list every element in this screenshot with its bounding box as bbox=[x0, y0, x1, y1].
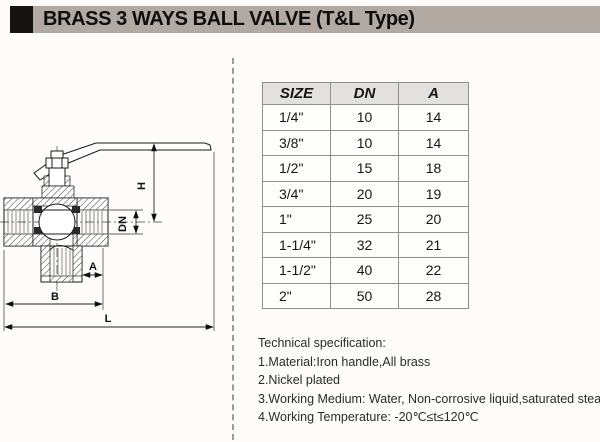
size-table-header-row: SIZE DN A bbox=[263, 83, 469, 105]
table-row: 3/4"2019 bbox=[263, 181, 469, 207]
cell-size: 1" bbox=[263, 207, 331, 233]
table-row: 1-1/4"3221 bbox=[263, 232, 469, 258]
dim-label-h: H bbox=[136, 182, 148, 190]
cell-dn: 15 bbox=[331, 156, 399, 182]
valve-ball bbox=[39, 204, 75, 240]
cell-dn: 40 bbox=[331, 258, 399, 284]
valve-drawing: H DN A B L bbox=[0, 55, 240, 347]
cell-size: 2" bbox=[263, 283, 331, 309]
col-header-a: A bbox=[399, 83, 469, 105]
header-bar: BRASS 3 WAYS BALL VALVE (T&L Type) bbox=[10, 6, 600, 33]
cell-a: 21 bbox=[399, 232, 469, 258]
size-table: SIZE DN A 1/4"1014 3/8"1014 1/2"1518 3/4… bbox=[262, 82, 469, 309]
cell-a: 20 bbox=[399, 207, 469, 233]
header-accent-block bbox=[10, 6, 33, 33]
page-title: BRASS 3 WAYS BALL VALVE (T&L Type) bbox=[43, 6, 415, 33]
cell-dn: 50 bbox=[331, 283, 399, 309]
valve-body bbox=[4, 186, 108, 246]
cell-a: 28 bbox=[399, 283, 469, 309]
table-row: 1-1/2"4022 bbox=[263, 258, 469, 284]
cell-dn: 32 bbox=[331, 232, 399, 258]
col-header-dn: DN bbox=[331, 83, 399, 105]
cell-size: 3/8" bbox=[263, 130, 331, 156]
cell-size: 3/4" bbox=[263, 181, 331, 207]
cell-a: 19 bbox=[399, 181, 469, 207]
table-row: 1/4"1014 bbox=[263, 105, 469, 131]
spec-line-2: 2.Nickel plated bbox=[258, 371, 600, 390]
dim-label-b: B bbox=[51, 291, 59, 303]
dashed-separator bbox=[232, 58, 234, 440]
table-row: 1/2"1518 bbox=[263, 156, 469, 182]
cell-size: 1-1/4" bbox=[263, 232, 331, 258]
spec-line-3: 3.Working Medium: Water, Non-corrosive l… bbox=[258, 390, 600, 409]
dim-label-dn: DN bbox=[117, 216, 129, 232]
cell-a: 14 bbox=[399, 105, 469, 131]
cell-size: 1-1/2" bbox=[263, 258, 331, 284]
technical-specs: Technical specification: 1.Material:Iron… bbox=[258, 334, 600, 427]
dim-label-l: L bbox=[105, 313, 112, 325]
cell-dn: 20 bbox=[331, 181, 399, 207]
cell-size: 1/2" bbox=[263, 156, 331, 182]
table-row: 3/8"1014 bbox=[263, 130, 469, 156]
cell-a: 22 bbox=[399, 258, 469, 284]
spec-line-1: 1.Material:Iron handle,All brass bbox=[258, 353, 600, 372]
cell-dn: 10 bbox=[331, 105, 399, 131]
cell-a: 14 bbox=[399, 130, 469, 156]
cell-dn: 10 bbox=[331, 130, 399, 156]
cell-size: 1/4" bbox=[263, 105, 331, 131]
col-header-size: SIZE bbox=[263, 83, 331, 105]
cell-dn: 25 bbox=[331, 207, 399, 233]
spec-line-4: 4.Working Temperature: -20℃≤t≤120℃ bbox=[258, 408, 600, 427]
cell-a: 18 bbox=[399, 156, 469, 182]
table-row: 1"2520 bbox=[263, 207, 469, 233]
specs-title: Technical specification: bbox=[258, 334, 600, 353]
bottom-port bbox=[41, 246, 82, 283]
page: BRASS 3 WAYS BALL VALVE (T&L Type) bbox=[0, 0, 600, 442]
table-row: 2"5028 bbox=[263, 283, 469, 309]
dim-label-a: A bbox=[89, 261, 97, 273]
